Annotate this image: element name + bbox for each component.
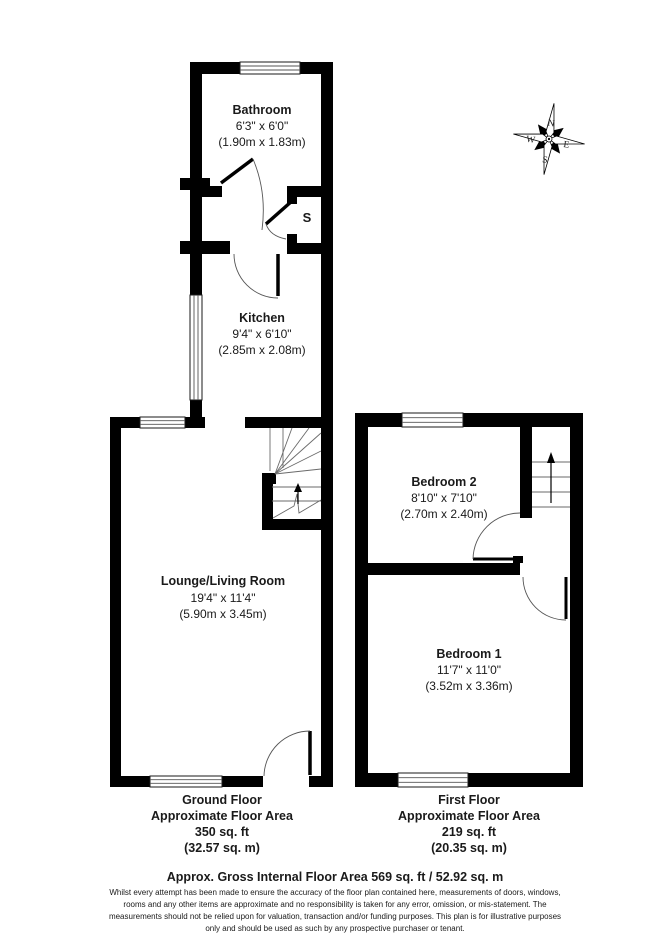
kitchen-size-metric: (2.85m x 2.08m): [218, 343, 305, 357]
ground-floor-area-block: Ground Floor Approximate Floor Area 350 …: [151, 793, 294, 855]
wall: [110, 417, 121, 787]
wall: [180, 241, 230, 254]
wall: [287, 186, 321, 197]
first-floor-plan: Bedroom 2 8'10" x 7'10" (2.70m x 2.40m) …: [355, 413, 583, 787]
ground-floor-area-label: Approximate Floor Area: [151, 809, 294, 823]
disclaimer-line-1: Whilst every attempt has been made to en…: [109, 888, 560, 897]
wall: [468, 773, 583, 787]
first-floor-room-labels: Bedroom 2 8'10" x 7'10" (2.70m x 2.40m) …: [400, 475, 512, 693]
wall: [262, 519, 321, 530]
wall: [190, 254, 202, 295]
floor-plan-page: N E S W: [0, 0, 670, 948]
staircase-ground: [270, 428, 321, 518]
kitchen-window: [190, 295, 202, 400]
wall: [355, 773, 398, 787]
disclaimer-line-4: only and should be used as such by any p…: [205, 924, 464, 933]
compass-w: W: [525, 135, 535, 146]
bedroom1-size-metric: (3.52m x 3.36m): [425, 679, 512, 693]
footer: Approx. Gross Internal Floor Area 569 sq…: [109, 870, 561, 933]
staircase-first: [532, 452, 570, 507]
first-floor-area-block: First Floor Approximate Floor Area 219 s…: [398, 793, 541, 855]
first-floor-windows: [398, 413, 468, 787]
compass-e: E: [563, 140, 570, 151]
storage-label: S: [303, 210, 312, 225]
first-floor-name: First Floor: [438, 793, 500, 807]
bathroom-window: [240, 62, 300, 74]
bedroom1-door: [523, 577, 566, 620]
compass-rose: N E S W: [508, 98, 589, 179]
first-floor-area-m: (20.35 sq. m): [431, 841, 507, 855]
bedroom2-name: Bedroom 2: [411, 475, 476, 489]
wall: [368, 563, 520, 575]
wall: [190, 197, 202, 241]
ground-floor-plan: Bathroom 6'3" x 6'0" (1.90m x 1.83m) S K…: [110, 62, 333, 787]
ground-floor-name: Ground Floor: [182, 793, 262, 807]
lounge-size-metric: (5.90m x 3.45m): [179, 607, 266, 621]
bedroom2-size-metric: (2.70m x 2.40m): [400, 507, 487, 521]
wall: [287, 234, 297, 245]
floor-plan-canvas: N E S W: [0, 0, 670, 948]
first-floor-walls: [355, 413, 583, 787]
disclaimer-line-2: rooms and any other items are approximat…: [123, 900, 547, 909]
first-floor-area-ft: 219 sq. ft: [442, 825, 497, 839]
bathroom-name: Bathroom: [232, 103, 291, 117]
bathroom-size-metric: (1.90m x 1.83m): [218, 135, 305, 149]
wall: [245, 417, 321, 428]
bathroom-door: [221, 159, 263, 230]
wall: [570, 413, 583, 787]
bedroom1-window: [398, 773, 468, 787]
front-door: [264, 731, 310, 776]
kitchen-size-imperial: 9'4" x 6'10": [232, 327, 291, 341]
stair-direction-arrow: [547, 452, 555, 503]
gross-area-title: Approx. Gross Internal Floor Area 569 sq…: [167, 870, 503, 884]
bedroom1-name: Bedroom 1: [436, 647, 501, 661]
ground-floor-area-ft: 350 sq. ft: [195, 825, 250, 839]
lounge-name: Lounge/Living Room: [161, 574, 285, 588]
wall: [355, 413, 368, 787]
lounge-front-window: [140, 417, 185, 428]
bedroom2-window: [402, 413, 463, 427]
wall: [190, 62, 240, 74]
bedroom2-size-imperial: 8'10" x 7'10": [411, 491, 477, 505]
lounge-size-imperial: 19'4" x 11'4": [191, 591, 256, 605]
wall: [309, 776, 333, 787]
wall: [520, 427, 532, 518]
kitchen-name: Kitchen: [239, 311, 285, 325]
bathroom-size-imperial: 6'3" x 6'0": [236, 119, 288, 133]
wall: [463, 413, 583, 427]
wall: [190, 74, 202, 178]
wall: [110, 776, 150, 787]
disclaimer-line-3: measurements should not be relied upon f…: [109, 912, 561, 921]
wall: [321, 62, 333, 787]
storage-door: [266, 201, 292, 239]
lounge-rear-window: [150, 776, 222, 787]
ground-floor-area-m: (32.57 sq. m): [184, 841, 260, 855]
first-floor-area-label: Approximate Floor Area: [398, 809, 541, 823]
wall: [222, 776, 263, 787]
stair-break-line: [273, 494, 321, 518]
bedroom1-size-imperial: 11'7" x 11'0": [437, 663, 501, 677]
wall: [190, 186, 222, 197]
wall: [185, 417, 205, 428]
kitchen-door: [234, 254, 278, 298]
